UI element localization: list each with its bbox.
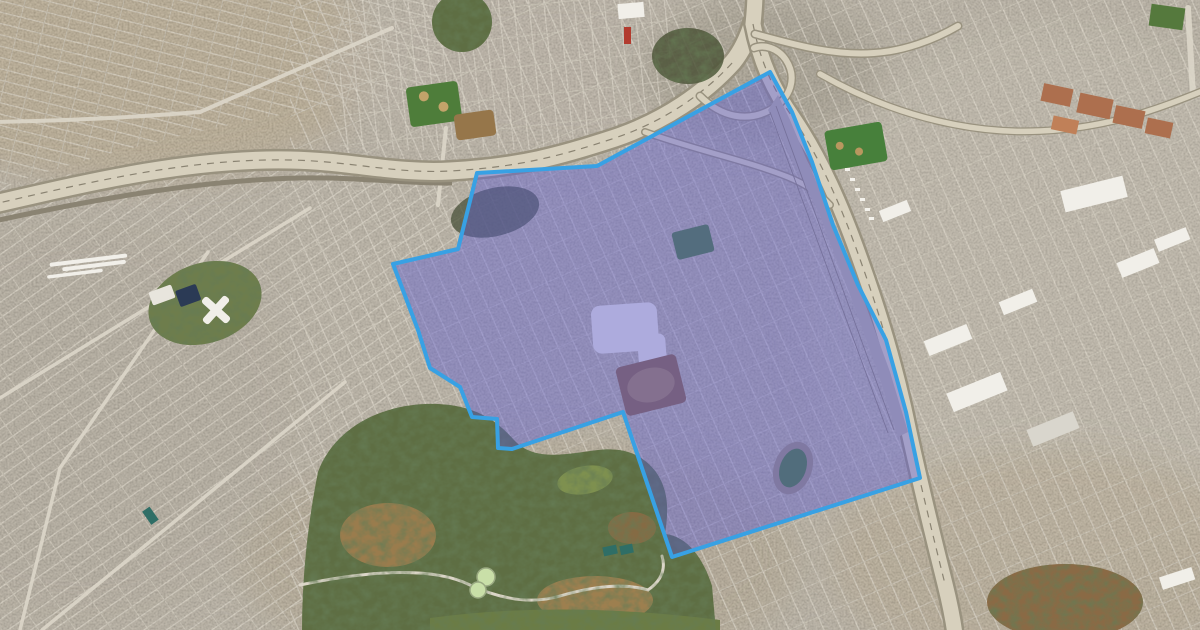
satellite-map <box>0 0 1200 630</box>
white-building-top-center <box>617 2 644 19</box>
red-roof-building <box>624 27 631 44</box>
green-field-top-right <box>1149 4 1186 31</box>
satellite-map-canvas[interactable] <box>0 0 1200 630</box>
baseball-field-west <box>405 81 462 128</box>
dry-lot-west <box>453 109 496 140</box>
